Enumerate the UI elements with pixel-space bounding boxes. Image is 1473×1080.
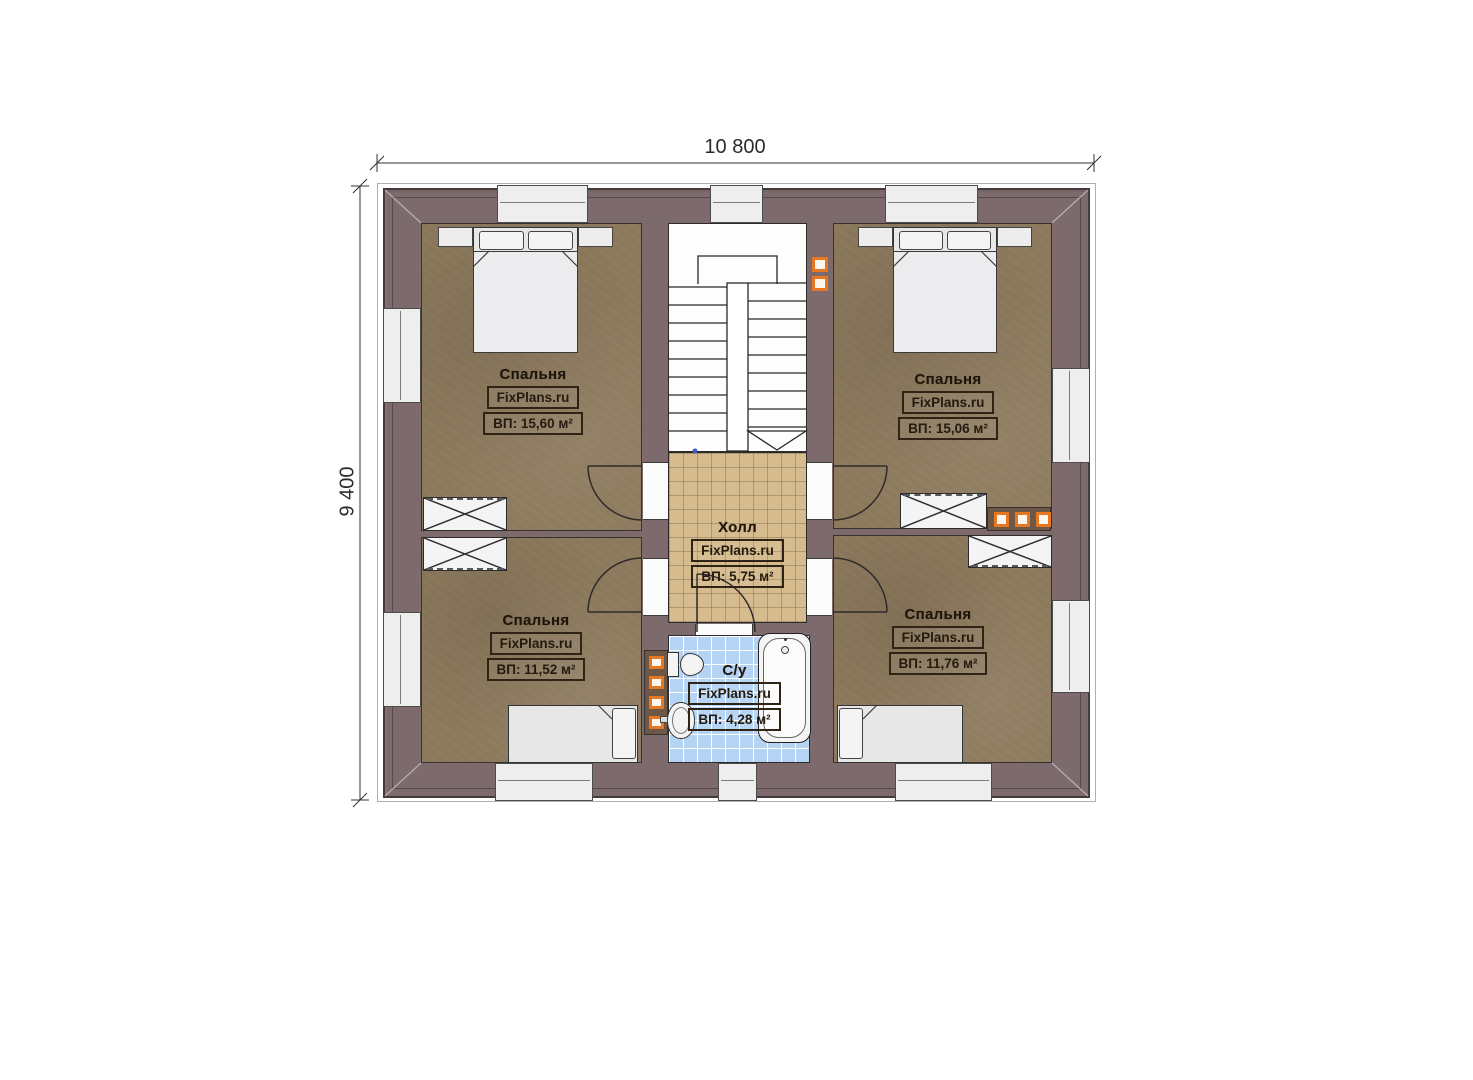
window-glass-line <box>721 780 754 781</box>
room-name-label: Спальня <box>453 366 613 383</box>
nightstand <box>578 227 613 247</box>
pillow <box>479 231 524 250</box>
room-label-bathroom: С/у FixPlans.ru ВП: 4,28 м² <box>664 662 805 731</box>
stairwell <box>668 223 807 452</box>
window-glass-line <box>888 202 975 203</box>
watermark-label: FixPlans.ru <box>490 632 583 655</box>
wardrobe-icon <box>900 493 987 529</box>
wardrobe-front-dash <box>972 565 1048 567</box>
dimension-width-label: 10 800 <box>635 136 835 159</box>
wardrobe-icon <box>423 497 507 531</box>
vent-duct-block <box>987 507 1051 531</box>
window-glass-line <box>500 202 585 203</box>
bathtub-drain <box>781 646 789 654</box>
door-opening-bedroom-top-left <box>643 462 668 520</box>
door-opening-bedroom-top-right <box>807 462 832 520</box>
watermark-label: FixPlans.ru <box>487 386 580 409</box>
window-glass-line <box>898 780 989 781</box>
room-name-label: Холл <box>667 519 808 536</box>
watermark-label: FixPlans.ru <box>691 539 784 562</box>
vent-icon <box>649 656 664 669</box>
vent-icon <box>994 512 1009 527</box>
wardrobe-icon <box>968 535 1052 568</box>
bed-blanket <box>893 251 997 353</box>
wardrobe-front-dash <box>427 568 503 570</box>
window-glass-line <box>1069 371 1070 460</box>
room-name-label: С/у <box>664 662 805 679</box>
pillow <box>899 231 943 250</box>
area-label: ВП: 11,76 м² <box>889 652 988 675</box>
room-label-bedroom-top-right: Спальня FixPlans.ru ВП: 15,06 м² <box>868 371 1028 440</box>
window <box>495 763 593 801</box>
window <box>718 763 757 801</box>
window-glass-line <box>498 780 590 781</box>
area-label: ВП: 5,75 м² <box>691 565 783 588</box>
pillow <box>528 231 573 250</box>
window <box>1052 368 1090 463</box>
window-glass-line <box>400 615 401 704</box>
area-label: ВП: 15,06 м² <box>898 417 998 440</box>
area-label: ВП: 11,52 м² <box>487 658 586 681</box>
window <box>1052 600 1090 693</box>
watermark-label: FixPlans.ru <box>892 626 985 649</box>
nightstand <box>438 227 473 247</box>
room-label-bedroom-bottom-right: Спальня FixPlans.ru ВП: 11,76 м² <box>858 606 1018 675</box>
bed-blanket <box>473 251 578 353</box>
watermark-label: FixPlans.ru <box>688 682 781 705</box>
dimension-height-label: 9 400 <box>337 457 360 527</box>
window <box>383 308 421 403</box>
vent-icon <box>649 676 664 689</box>
nightstand <box>858 227 893 247</box>
pillow <box>839 708 863 759</box>
window-glass-line <box>400 311 401 400</box>
window <box>895 763 992 801</box>
window <box>710 185 763 223</box>
wardrobe-front-dash <box>904 494 983 496</box>
wardrobe-front-dash <box>427 498 503 500</box>
pillow <box>947 231 991 250</box>
window-glass-line <box>1069 603 1070 690</box>
nightstand <box>997 227 1032 247</box>
window <box>885 185 978 223</box>
bathtub-tap <box>784 638 787 641</box>
vent-icon <box>812 257 828 272</box>
room-label-bedroom-top-left: Спальня FixPlans.ru ВП: 15,60 м² <box>453 366 613 435</box>
pillow <box>612 708 636 759</box>
door-opening-bedroom-bottom-left <box>643 558 668 616</box>
window <box>497 185 588 223</box>
wardrobe-icon <box>423 537 507 571</box>
watermark-label: FixPlans.ru <box>902 391 995 414</box>
vent-icon <box>649 696 664 709</box>
window-glass-line <box>713 202 760 203</box>
floor-plan-page: 10 800 9 400 <box>0 0 1473 1080</box>
vent-icon <box>812 276 828 291</box>
room-label-bedroom-bottom-left: Спальня FixPlans.ru ВП: 11,52 м² <box>456 612 616 681</box>
area-label: ВП: 4,28 м² <box>688 708 780 731</box>
room-label-hall: Холл FixPlans.ru ВП: 5,75 м² <box>667 519 808 588</box>
area-label: ВП: 15,60 м² <box>483 412 583 435</box>
vent-icon <box>1015 512 1030 527</box>
room-name-label: Спальня <box>858 606 1018 623</box>
room-name-label: Спальня <box>868 371 1028 388</box>
window <box>383 612 421 707</box>
vent-icon <box>1036 512 1051 527</box>
door-opening-bedroom-bottom-right <box>807 558 832 616</box>
room-name-label: Спальня <box>456 612 616 629</box>
door-opening-bathroom <box>695 624 753 635</box>
